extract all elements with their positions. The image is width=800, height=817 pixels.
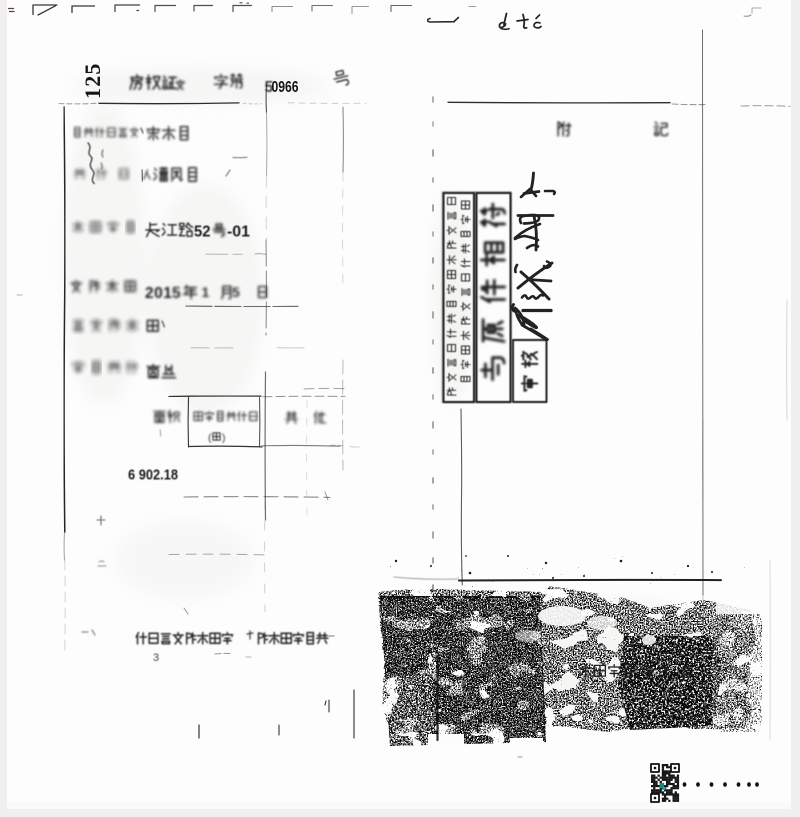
svg-text:(: ( [638,666,643,681]
svg-text:-01: -01 [227,224,250,241]
svg-text:6 902.18: 6 902.18 [128,468,178,484]
svg-text:125: 125 [80,62,105,99]
svg-text:): ) [672,666,676,681]
svg-text:(: ( [208,432,212,444]
svg-text:): ) [222,432,226,444]
svg-text:52: 52 [194,224,211,241]
svg-text:0966: 0966 [272,79,299,96]
svg-text:5: 5 [172,285,181,302]
svg-text:5: 5 [232,284,240,300]
svg-text:201: 201 [145,285,172,302]
svg-text:3: 3 [153,652,159,664]
svg-text:1: 1 [202,284,210,300]
